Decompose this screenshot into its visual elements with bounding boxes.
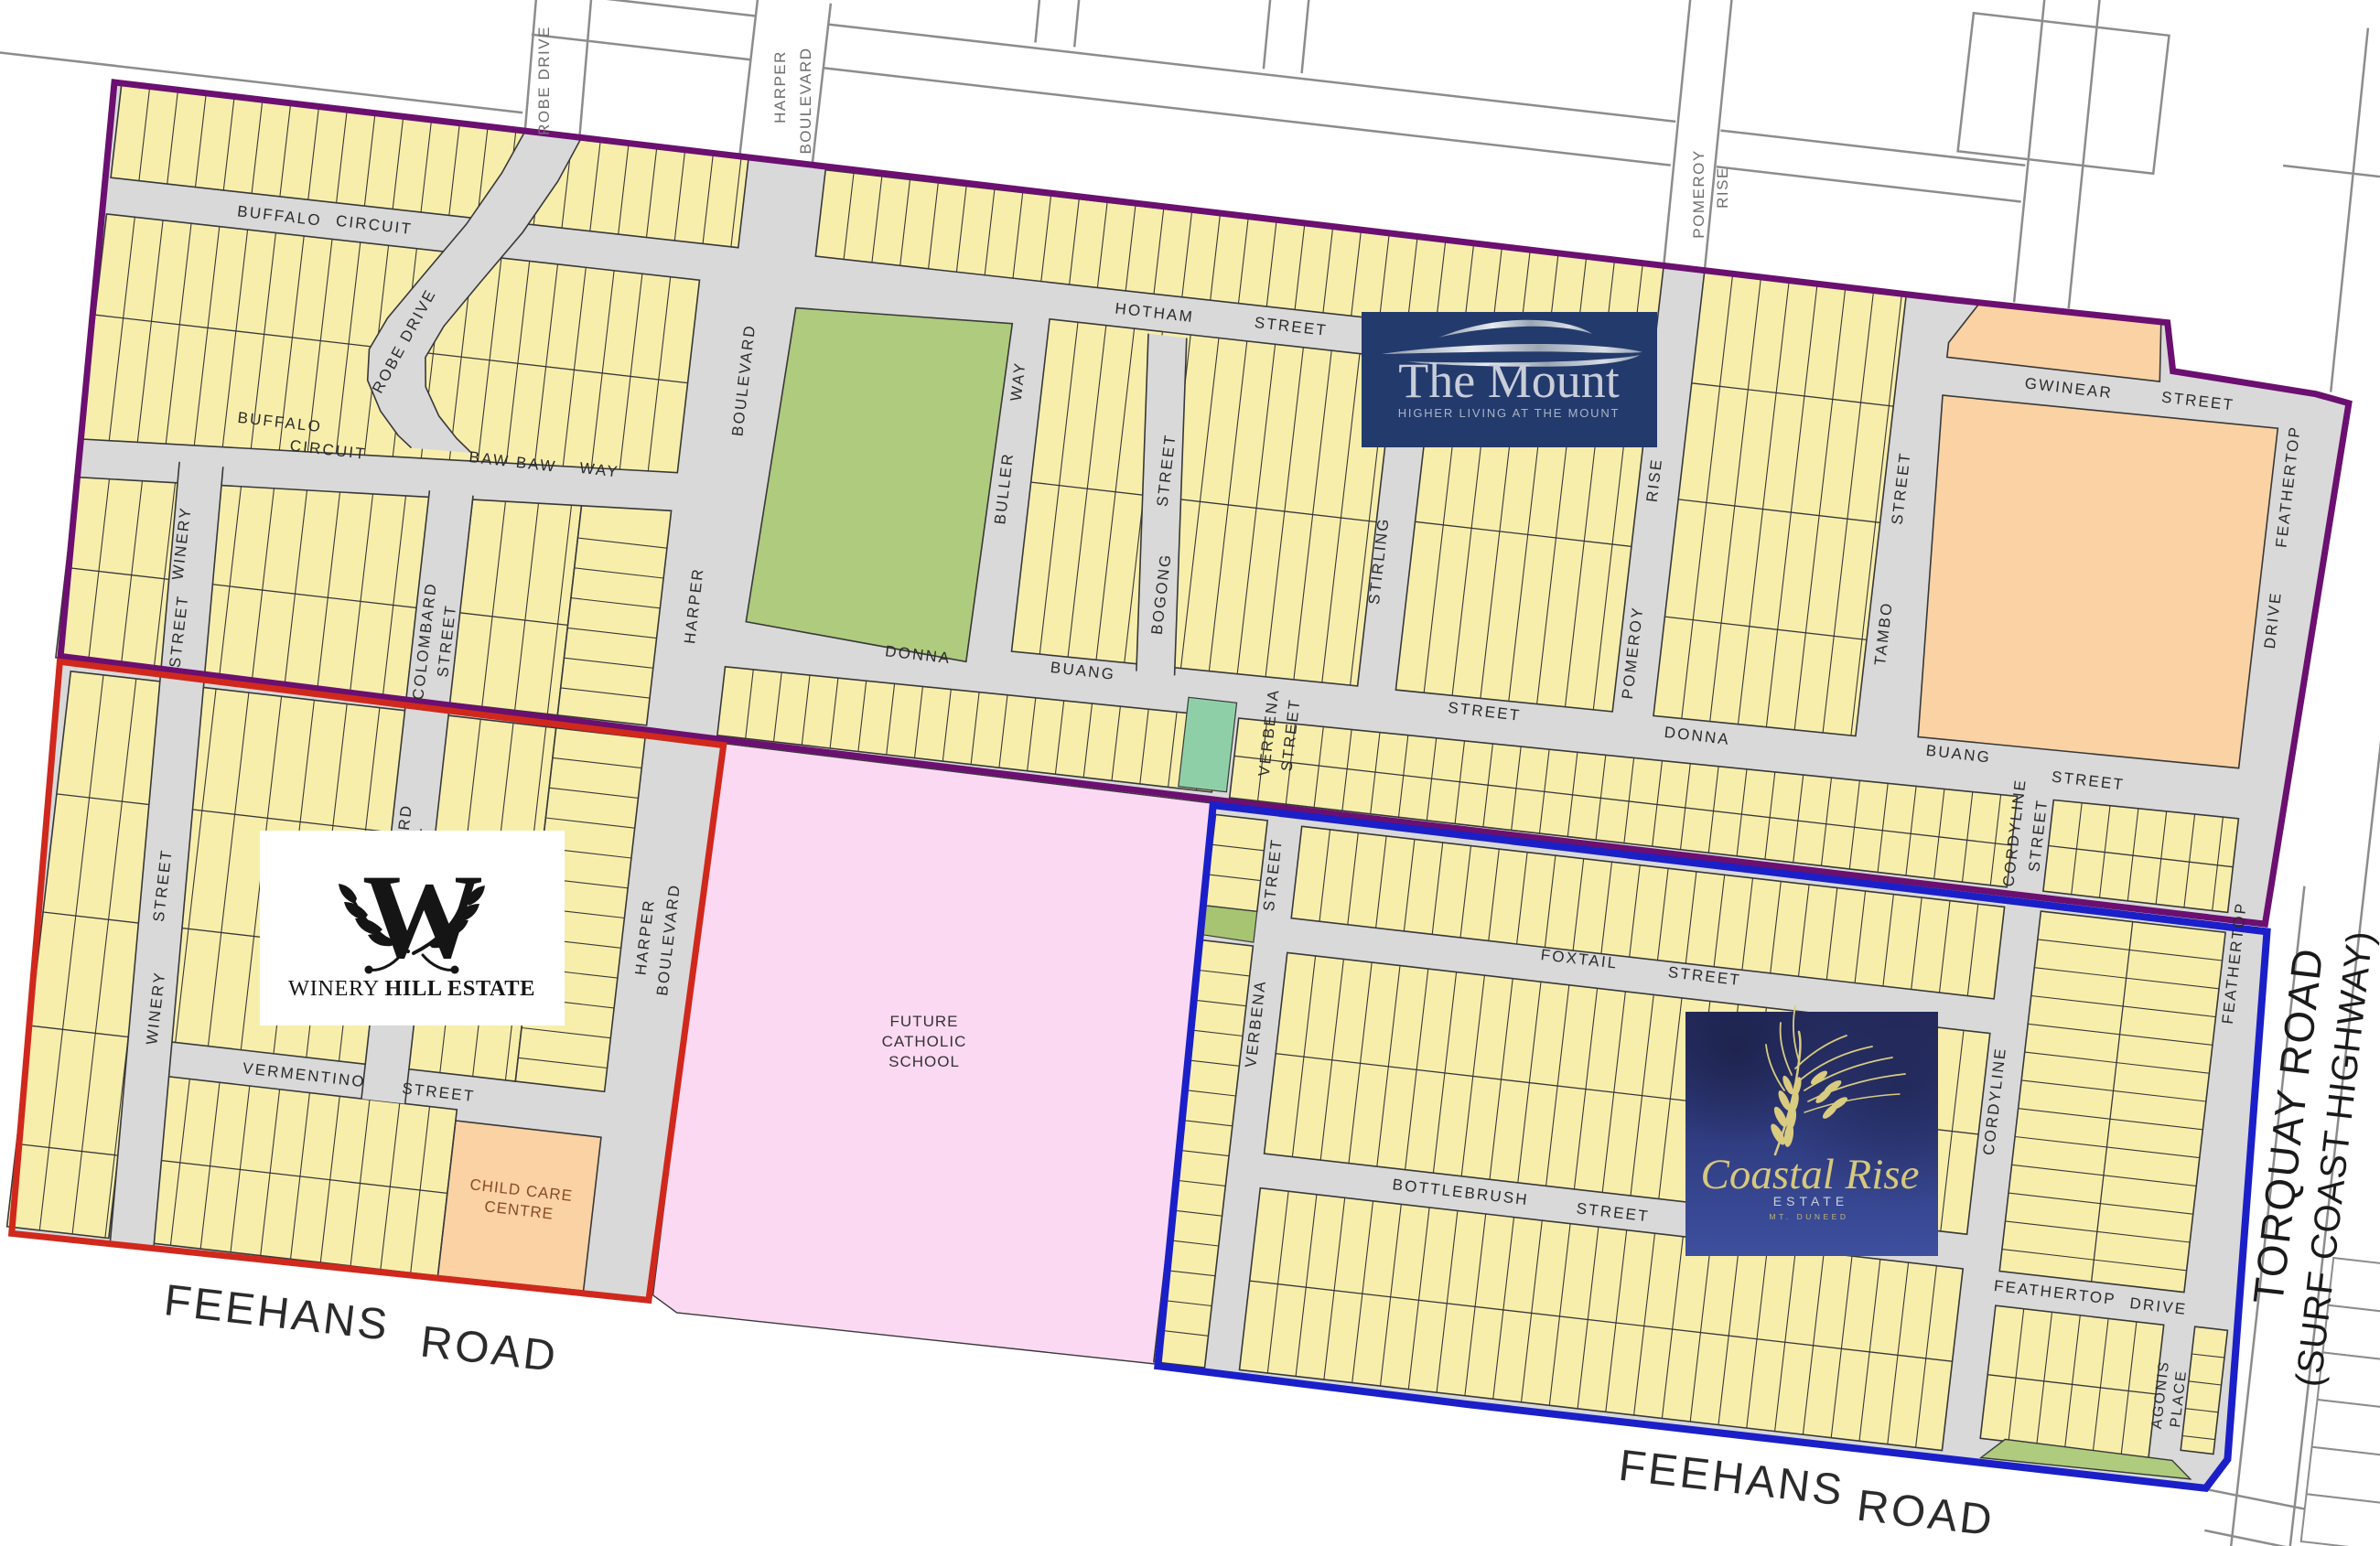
svg-text:RISE: RISE xyxy=(1714,166,1731,209)
svg-text:BOULEVARD: BOULEVARD xyxy=(797,47,814,154)
svg-text:CATHOLIC: CATHOLIC xyxy=(882,1033,967,1050)
svg-text:Coastal Rise: Coastal Rise xyxy=(1701,1151,1920,1198)
svg-text:FUTURE: FUTURE xyxy=(890,1013,959,1030)
svg-text:POMEROY: POMEROY xyxy=(1690,149,1707,238)
svg-text:ESTATE: ESTATE xyxy=(1773,1194,1848,1208)
svg-text:MT. DUNEED: MT. DUNEED xyxy=(1770,1212,1849,1221)
svg-text:SCHOOL: SCHOOL xyxy=(888,1053,960,1070)
svg-text:HARPER: HARPER xyxy=(771,50,789,123)
svg-text:HIGHER LIVING AT THE MOUNT: HIGHER LIVING AT THE MOUNT xyxy=(1398,406,1621,420)
svg-text:WINERY HILL ESTATE: WINERY HILL ESTATE xyxy=(288,976,535,1001)
svg-text:The Mount: The Mount xyxy=(1398,353,1619,408)
svg-text:ROBE DRIVE: ROBE DRIVE xyxy=(535,26,553,135)
